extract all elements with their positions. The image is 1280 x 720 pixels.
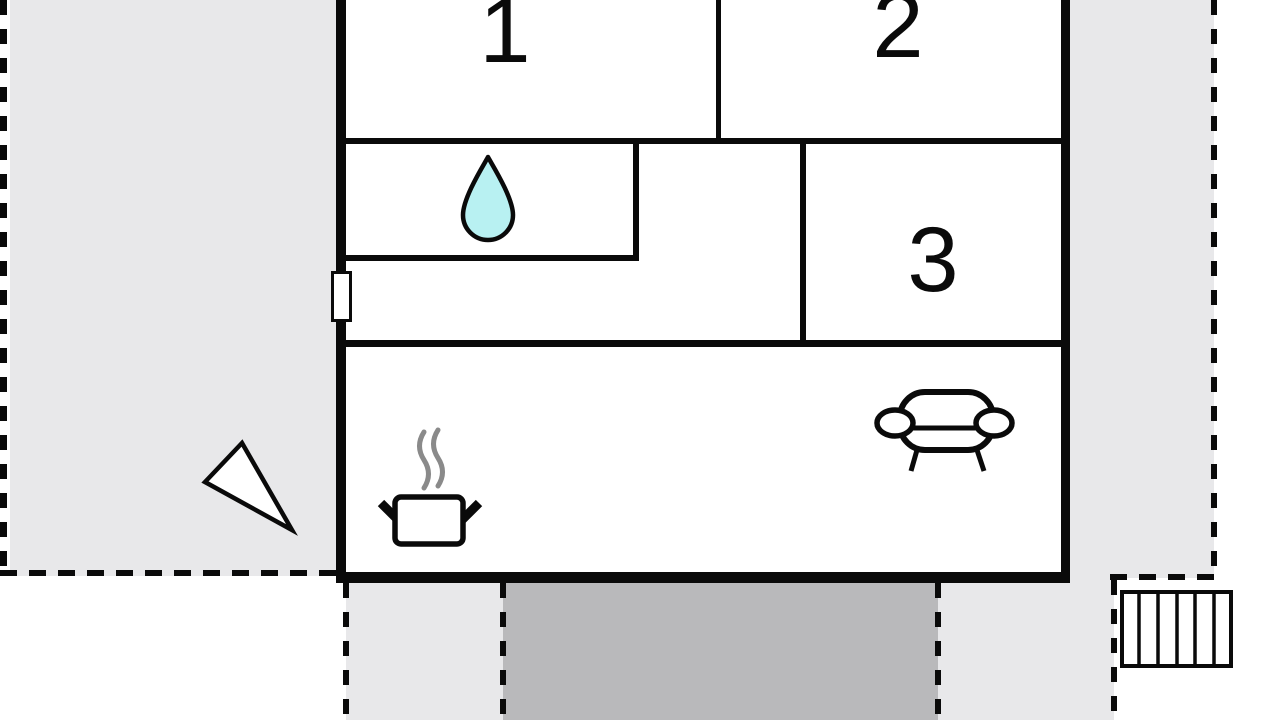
path-below-left-area [346, 578, 503, 720]
room-1-label: 1 [450, 0, 560, 76]
wall-bathroom-bottom [346, 255, 639, 261]
floor-plan-canvas: 1 2 3 [0, 0, 1280, 720]
dashed-boundary-below-right [1111, 580, 1117, 720]
stairs-icon [1120, 590, 1233, 668]
sofa-icon [873, 388, 1018, 476]
wall-bedrooms-bottom [346, 138, 1061, 144]
dashed-boundary-left-edge [0, 0, 7, 576]
terrace-right-area [1068, 0, 1214, 578]
cooking-pot-steam-icon [375, 427, 485, 549]
dashed-boundary-driveway-left [500, 583, 506, 720]
direction-triangle-icon [200, 438, 300, 538]
wall-room3-left [800, 139, 806, 347]
dashed-boundary-terrace-bottom [0, 570, 346, 576]
dashed-boundary-path-left [343, 583, 349, 720]
dashed-boundary-right-bottom [1110, 574, 1217, 580]
water-drop-icon [455, 153, 521, 247]
path-below-right-area [938, 578, 1114, 720]
dashed-boundary-driveway-right [935, 583, 941, 720]
wall-livingroom-top [346, 340, 1061, 347]
room-3-label: 3 [878, 215, 988, 305]
dashed-boundary-right-edge [1211, 0, 1217, 578]
driveway-area [503, 578, 938, 720]
window-marker [331, 271, 352, 322]
wall-bathroom-right [633, 139, 639, 261]
room-2-label: 2 [843, 0, 953, 71]
wall-room1-room2-divider [716, 0, 721, 144]
wall-outer-right [1061, 0, 1070, 583]
wall-outer-bottom [336, 572, 1070, 583]
